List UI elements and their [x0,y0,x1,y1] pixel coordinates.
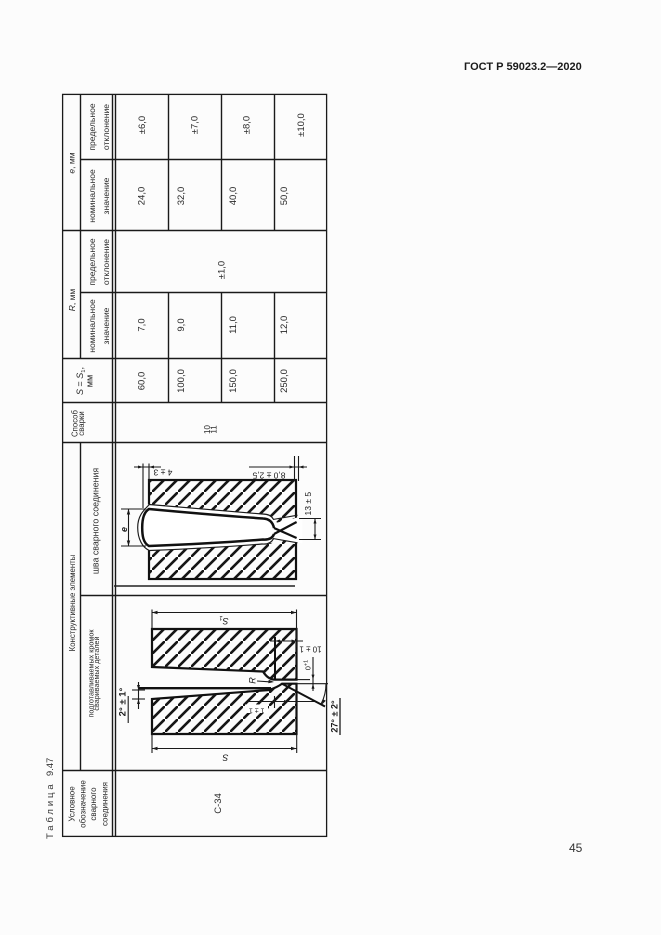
svg-text:100,0: 100,0 [176,369,187,393]
svg-text:С-34: С-34 [213,793,224,814]
svg-text:4 ± 3: 4 ± 3 [153,467,172,477]
svg-text:значение: значение [101,177,111,214]
svg-text:отклонение: отклонение [101,103,111,149]
svg-text:шва сварного соединения: шва сварного соединения [91,467,101,573]
svg-text:±7,0: ±7,0 [190,115,201,133]
svg-text:свариваемых деталей: свариваемых деталей [92,636,101,710]
svg-text:R, мм: R, мм [67,288,77,311]
svg-text:7,0: 7,0 [136,318,147,331]
svg-text:S: S [222,752,228,762]
svg-text:11: 11 [210,424,219,433]
svg-text:±6,0: ±6,0 [137,115,148,133]
svg-text:9,0: 9,0 [176,318,187,331]
svg-text:11,0: 11,0 [228,316,239,334]
svg-text:8,0 ± 2,5: 8,0 ± 2,5 [252,470,285,480]
svg-text:e: e [119,526,129,531]
svg-text:60,0: 60,0 [136,371,147,390]
svg-text:32,0: 32,0 [176,186,187,205]
svg-text:24,0: 24,0 [136,186,147,205]
svg-text:50,0: 50,0 [279,186,290,205]
svg-text:S1: S1 [219,614,228,626]
svg-text:обозначение: обозначение [78,779,87,827]
svg-text:номинальное: номинальное [87,299,97,353]
svg-text:предельное: предельное [87,238,97,286]
svg-text:±10,0: ±10,0 [296,113,307,137]
svg-text:13 ± 5: 13 ± 5 [303,491,313,515]
svg-text:e, мм: e, мм [67,152,77,173]
svg-text:предельное: предельное [87,103,97,151]
svg-text:27° ± 2°: 27° ± 2° [330,700,340,733]
svg-text:R: R [248,676,258,683]
svg-text:соединения: соединения [100,781,109,825]
svg-text:12,0: 12,0 [279,315,290,334]
svg-text:сварного: сварного [89,786,98,820]
svg-text:250,0: 250,0 [279,369,290,393]
svg-text:0+1: 0+1 [304,659,313,669]
svg-text:150,0: 150,0 [228,369,239,393]
svg-text:сварки: сварки [77,411,86,435]
svg-text:2° ± 1°: 2° ± 1° [118,687,129,716]
svg-text:±1,0: ±1,0 [216,260,227,278]
svg-text:отклонение: отклонение [101,238,111,284]
svg-text:значение: значение [101,307,111,344]
svg-text:±8,0: ±8,0 [241,115,252,133]
svg-text:Условное: Условное [67,785,76,821]
svg-text:40,0: 40,0 [228,186,239,205]
svg-text:10 ± 1: 10 ± 1 [299,644,322,653]
svg-text:мм: мм [85,374,95,386]
svg-text:номинальное: номинальное [87,169,97,223]
svg-text:1 ± 1: 1 ± 1 [249,706,265,713]
svg-text:Конструктивные элементы: Конструктивные элементы [68,554,77,651]
